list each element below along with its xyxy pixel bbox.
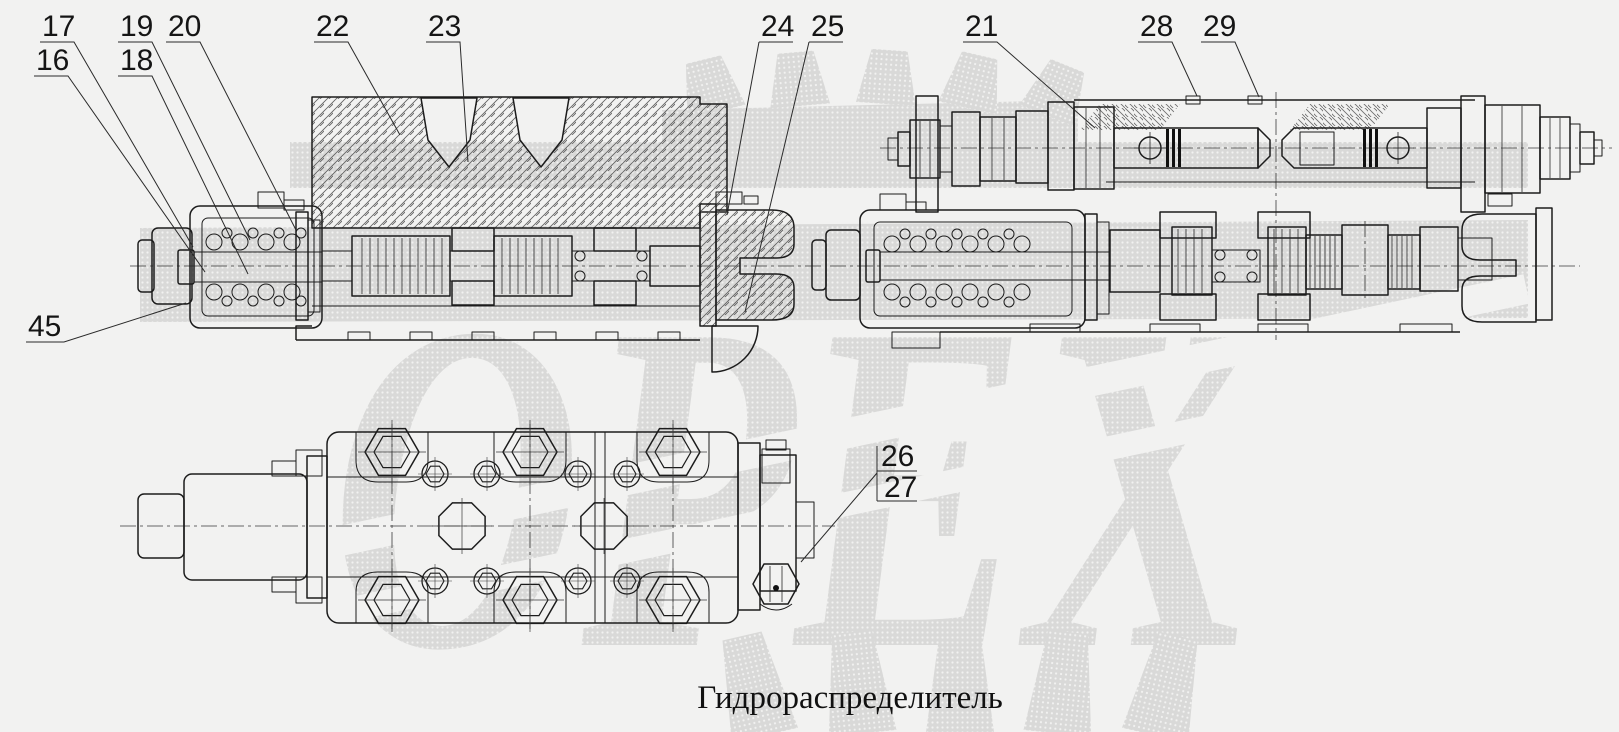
part-label-21: 21 <box>965 10 998 43</box>
part-label-17: 17 <box>42 10 75 43</box>
watermark-text: ОРЕХ <box>330 226 1267 732</box>
part-label-29: 29 <box>1203 10 1236 43</box>
part-label-18: 18 <box>120 44 153 77</box>
part-label-26: 26 <box>881 440 914 473</box>
part-label-23: 23 <box>428 10 461 43</box>
part-label-16: 16 <box>36 44 69 77</box>
figure-caption: Гидрораспределитель <box>697 680 1003 716</box>
part-label-28: 28 <box>1140 10 1173 43</box>
part-label-25: 25 <box>811 10 844 43</box>
drawing-sheet: ОРЕХ <box>0 0 1619 732</box>
part-label-22: 22 <box>316 10 349 43</box>
technical-drawing: ОРЕХ <box>0 0 1619 732</box>
watermark: ОРЕХ <box>76 48 1544 732</box>
part-label-45: 45 <box>28 310 61 343</box>
valve-body-block <box>312 97 727 228</box>
part-label-27: 27 <box>884 471 917 504</box>
part-label-20: 20 <box>168 10 201 43</box>
part-label-24: 24 <box>761 10 794 43</box>
part-label-19: 19 <box>120 10 153 43</box>
